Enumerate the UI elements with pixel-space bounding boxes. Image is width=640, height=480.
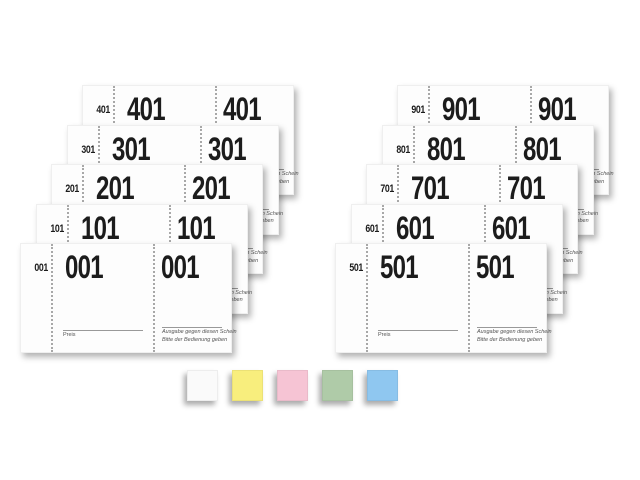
issue-note-line (162, 327, 222, 328)
ticket-number: 801 (523, 138, 576, 161)
ticket-number: 601 (396, 217, 462, 240)
ticket-number: 701 (507, 177, 560, 200)
color-swatch-yellow (232, 370, 263, 401)
ticket-number: 501 (476, 256, 529, 279)
issue-note-text-1: Ausgabe gegen diesen Schein (477, 329, 552, 336)
ticket-middle-section: 001 Preis (51, 244, 153, 352)
color-swatch-pink (277, 370, 308, 401)
issue-note-text-1: Ausgabe gegen diesen Schein (162, 329, 237, 336)
ticket-number: 601 (492, 217, 545, 240)
price-line (63, 330, 143, 331)
ticket-number: 201 (96, 177, 162, 200)
ticket-number: 001 (65, 256, 131, 279)
color-swatch-white (187, 370, 218, 401)
color-swatch-green (322, 370, 353, 401)
ticket-number: 501 (380, 256, 446, 279)
stub-number: 501 (350, 263, 363, 352)
ticket-number: 701 (411, 177, 477, 200)
stub-number: 001 (35, 263, 48, 352)
ticket-number: 401 (223, 98, 276, 121)
ticket-number: 301 (112, 138, 178, 161)
ticket-pad-001: 001 001 Preis 001 Ausgabe gegen diesen S… (20, 243, 232, 353)
price-label: Preis (378, 332, 458, 339)
ticket-stub: 001 (21, 244, 51, 352)
ticket-number: 401 (127, 98, 193, 121)
ticket-stub: 501 (336, 244, 366, 352)
ticket-number: 101 (81, 217, 147, 240)
issue-note-line (477, 327, 537, 328)
price-block: Preis (63, 330, 143, 339)
ticket-number: 001 (161, 256, 214, 279)
issue-note-text-2: Bitte der Bedienung geben (162, 337, 237, 344)
ticket-number: 301 (208, 138, 261, 161)
issue-note-text-2: Bitte der Bedienung geben (477, 337, 552, 344)
issue-note-block: Ausgabe gegen diesen Schein Bitte der Be… (477, 327, 552, 343)
ticket-middle-section: 501 Preis (366, 244, 468, 352)
ticket-number: 801 (427, 138, 493, 161)
ticket-number: 901 (442, 98, 508, 121)
color-swatch-blue (367, 370, 398, 401)
price-label: Preis (63, 332, 143, 339)
price-block: Preis (378, 330, 458, 339)
ticket-number: 101 (177, 217, 230, 240)
ticket-right-section: 001 Ausgabe gegen diesen Schein Bitte de… (153, 244, 231, 352)
ticket-number: 201 (192, 177, 245, 200)
ticket-pad-501: 501 501 Preis 501 Ausgabe gegen diesen S… (335, 243, 547, 353)
ticket-right-section: 501 Ausgabe gegen diesen Schein Bitte de… (468, 244, 546, 352)
product-photo-scene: 001 001 Preis 001 Ausgabe gegen diesen S… (0, 0, 640, 480)
issue-note-block: Ausgabe gegen diesen Schein Bitte der Be… (162, 327, 237, 343)
ticket-number: 901 (538, 98, 591, 121)
price-line (378, 330, 458, 331)
